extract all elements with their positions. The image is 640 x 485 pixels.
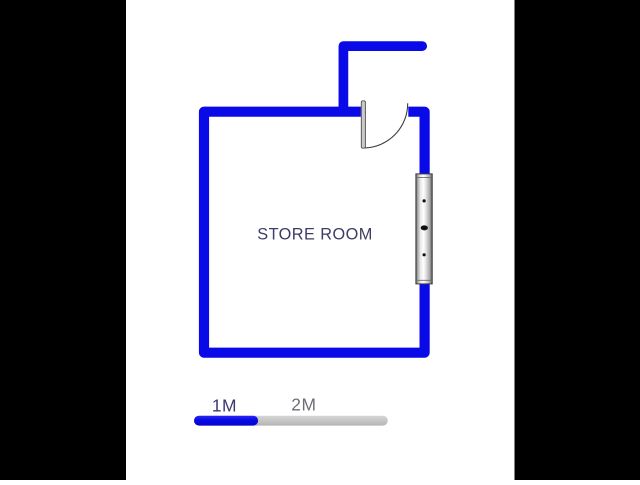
svg-text:2M: 2M bbox=[291, 394, 316, 414]
svg-text:1M: 1M bbox=[212, 395, 237, 415]
svg-text:STORE ROOM: STORE ROOM bbox=[257, 226, 372, 244]
